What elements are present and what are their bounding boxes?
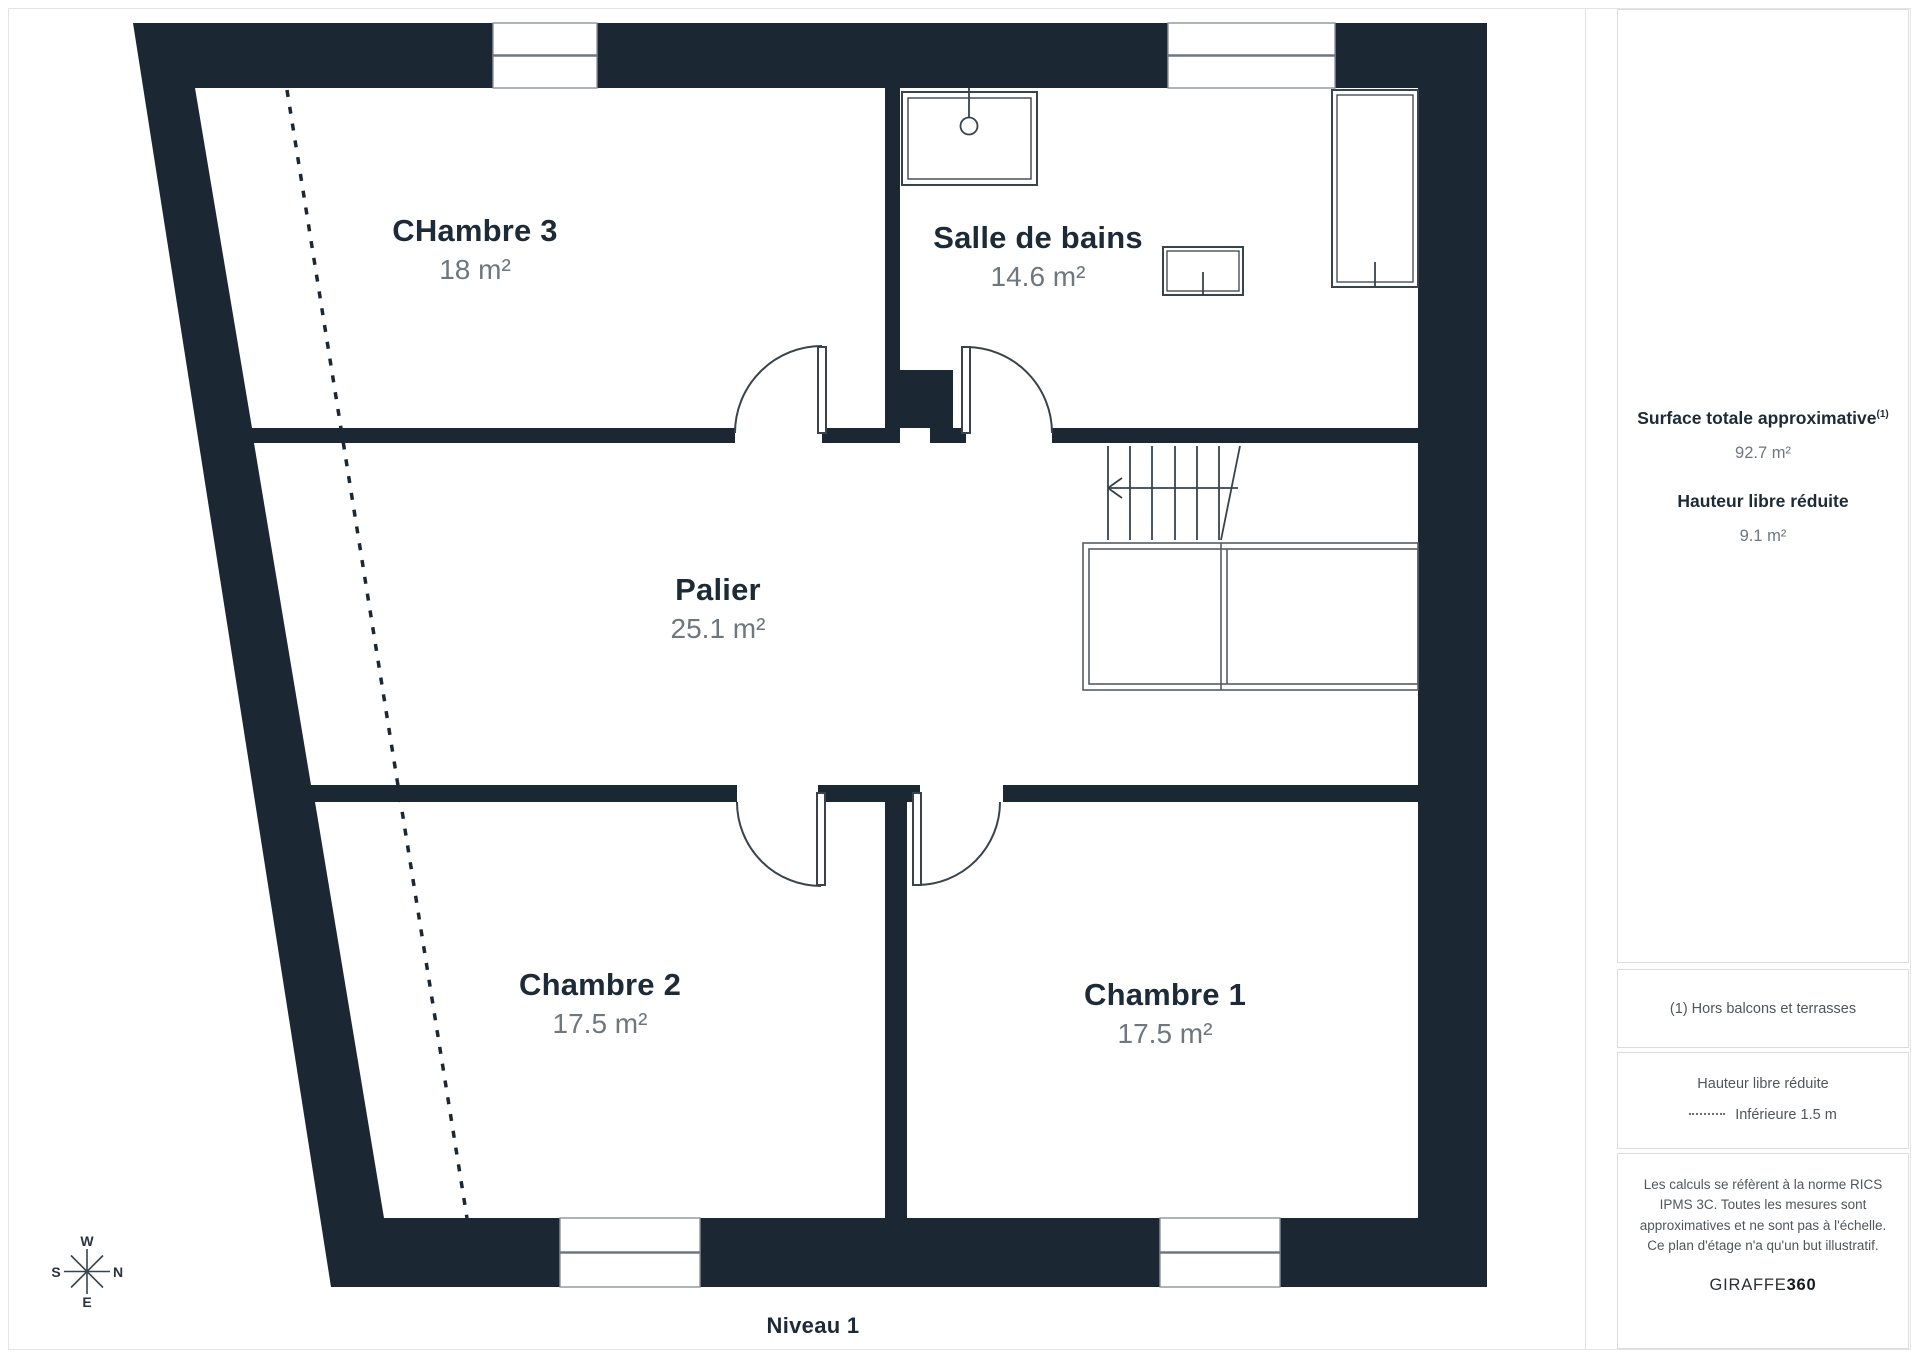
total-area-superscript: (1) <box>1877 409 1889 420</box>
faucet-icon <box>961 118 978 135</box>
footnote-text: (1) Hors balcons et terrasses <box>1670 1001 1856 1017</box>
room-area: 25.1 m² <box>671 613 766 645</box>
total-area-value: 92.7 m² <box>1618 444 1908 463</box>
sidebar-disclaimer-panel: Les calculs se réfèrent à la norme RICS … <box>1617 1153 1909 1349</box>
sidebar-divider <box>1585 9 1586 1349</box>
legend-title: Hauteur libre réduite <box>1618 1076 1908 1092</box>
toilet <box>1163 247 1243 295</box>
floorplan-page: CHambre 3 18 m² Salle de bains 14.6 m² P… <box>0 0 1919 1358</box>
compass-east-label: E <box>82 1294 91 1310</box>
sidebar-footnote-panel: (1) Hors balcons et terrasses <box>1617 969 1909 1048</box>
wall-block <box>900 370 953 428</box>
total-area-label: Surface totale approximative <box>1637 408 1876 428</box>
room-label-chambre1: Chambre 1 17.5 m² <box>1084 977 1246 1050</box>
room-area: 18 m² <box>392 254 557 286</box>
brand-suffix: 360 <box>1787 1276 1817 1294</box>
dotted-line-icon <box>1689 1113 1725 1115</box>
sidebar-summary-panel: Surface totale approximative(1) 92.7 m² … <box>1617 9 1909 963</box>
total-area-heading: Surface totale approximative(1) <box>1618 408 1908 429</box>
room-area: 17.5 m² <box>519 1008 681 1040</box>
reduced-height-value: 9.1 m² <box>1618 527 1908 546</box>
sink <box>902 88 1037 185</box>
room-name: CHambre 3 <box>392 213 557 249</box>
floor-level-label: Niveau 1 <box>767 1313 860 1339</box>
room-area: 14.6 m² <box>933 261 1143 293</box>
window-top-left <box>493 23 597 88</box>
window-bottom-right <box>1160 1218 1280 1287</box>
brand-logo: GIRAFFE360 <box>1635 1273 1891 1298</box>
compass-west-label: W <box>80 1233 93 1249</box>
room-label-palier: Palier 25.1 m² <box>671 572 766 645</box>
room-name: Palier <box>671 572 766 608</box>
room-area: 17.5 m² <box>1084 1018 1246 1050</box>
legend-row: Inférieure 1.5 m <box>1618 1107 1908 1123</box>
room-name: Salle de bains <box>933 220 1143 256</box>
compass-north-label: N <box>113 1264 123 1280</box>
room-label-chambre2: Chambre 2 17.5 m² <box>519 967 681 1040</box>
room-name: Chambre 1 <box>1084 977 1246 1013</box>
wardrobe <box>1332 90 1418 287</box>
window-bottom-left <box>560 1218 700 1287</box>
room-name: Chambre 2 <box>519 967 681 1003</box>
reduced-height-heading: Hauteur libre réduite <box>1618 491 1908 512</box>
legend-dotted-label: Inférieure 1.5 m <box>1735 1107 1837 1123</box>
window-top-right <box>1168 23 1335 88</box>
disclaimer-text: Les calculs se réfèrent à la norme RICS … <box>1635 1175 1891 1256</box>
room-palier-floor <box>254 443 1418 785</box>
room-label-chambre3: CHambre 3 18 m² <box>392 213 557 286</box>
compass-south-label: S <box>51 1264 60 1280</box>
brand-name: GIRAFFE <box>1709 1276 1786 1294</box>
room-label-bathroom: Salle de bains 14.6 m² <box>933 220 1143 293</box>
sidebar-legend-panel: Hauteur libre réduite Inférieure 1.5 m <box>1617 1052 1909 1149</box>
compass-icon <box>64 1249 110 1294</box>
